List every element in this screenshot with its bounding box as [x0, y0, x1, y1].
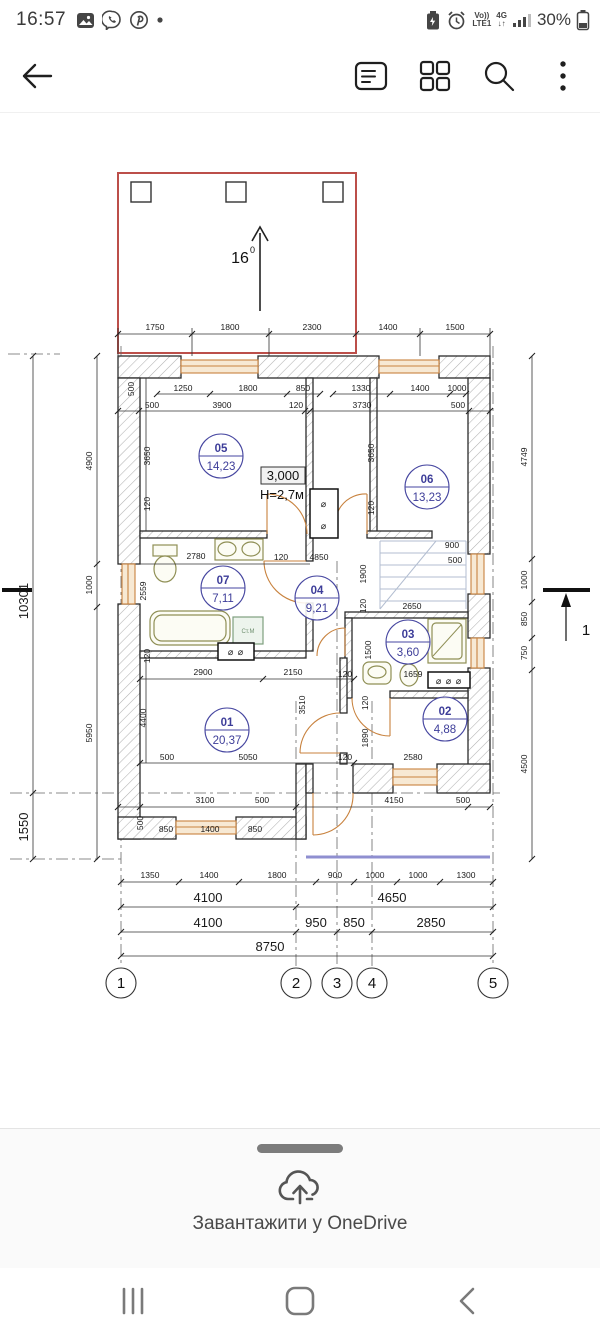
photo-viewer[interactable]: 16 0 — [0, 112, 600, 1129]
room-number: 03 — [402, 629, 415, 641]
back-button[interactable] — [18, 57, 56, 95]
dim: 1350 — [141, 870, 160, 880]
section-label: 1 — [582, 622, 590, 639]
navigation-bar — [0, 1268, 600, 1333]
search-button[interactable] — [480, 57, 518, 95]
dim: 1000 — [366, 870, 385, 880]
dim: 1000 — [448, 383, 467, 393]
axis-number: 2 — [292, 975, 300, 992]
dim: 1890 — [360, 728, 370, 747]
dim: 1500 — [363, 640, 373, 659]
dim: 500 — [126, 382, 136, 396]
alarm-icon — [446, 10, 467, 31]
dim: 4100 — [194, 915, 223, 930]
dim: 3650 — [142, 446, 152, 465]
dim: 500 — [160, 752, 174, 762]
viber-notification-icon — [102, 10, 122, 30]
entry-door — [313, 793, 353, 835]
axis-bubbles: 1 2 3 4 5 — [106, 968, 508, 998]
dim: 1400 — [200, 870, 219, 880]
dim: 1800 — [221, 322, 240, 332]
volte-indicator: Vo))LTE1 — [472, 12, 491, 28]
dim: 2150 — [284, 667, 303, 677]
room-number: 02 — [439, 706, 452, 718]
dim: 2650 — [403, 601, 422, 611]
toilet-tank — [153, 545, 177, 556]
room-number: 04 — [311, 585, 324, 597]
notification-icons — [76, 10, 164, 30]
dim: 1400 — [379, 322, 398, 332]
dim: 4900 — [84, 451, 94, 470]
search-icon — [483, 60, 515, 92]
door-room02 — [352, 698, 390, 736]
dim: 3730 — [353, 400, 372, 410]
onedrive-upload-label: Завантажити у OneDrive — [193, 1213, 408, 1235]
dim: 4100 — [194, 890, 223, 905]
dim: 3650 — [366, 443, 376, 462]
room-label-01: 0120,37 — [205, 708, 249, 752]
room-label-06: 0613,23 — [405, 465, 449, 509]
room-number: 06 — [421, 474, 434, 486]
dim: 120 — [338, 669, 352, 679]
dim: 1500 — [446, 322, 465, 332]
dim: 850 — [248, 824, 262, 834]
dim: 1659 — [404, 669, 423, 679]
dim: 4150 — [385, 795, 404, 805]
room-label-04: 049,21 — [295, 576, 339, 620]
vent-symbol: ⌀ — [321, 499, 327, 509]
dim: 5050 — [239, 752, 258, 762]
dim: 120 — [366, 501, 376, 515]
dim: 500 — [135, 816, 145, 830]
dim: 1400 — [411, 383, 430, 393]
dim: 3510 — [297, 695, 307, 714]
dim: 2850 — [417, 915, 446, 930]
vent-symbol: ⌀ ⌀ — [228, 647, 244, 657]
room-number: 01 — [221, 717, 234, 729]
room-label-05: 0514,23 — [199, 434, 243, 478]
dim: 3100 — [196, 795, 215, 805]
dim: 3900 — [213, 400, 232, 410]
dim: 4850 — [310, 552, 329, 562]
dim: 500 — [255, 795, 269, 805]
room-label-03: 033,60 — [386, 620, 430, 664]
room-area: 13,23 — [413, 492, 442, 504]
ceiling-height: Н=2,7м — [260, 487, 304, 502]
dim: 2580 — [404, 752, 423, 762]
dim: 2900 — [194, 667, 213, 677]
dim: 1300 — [457, 870, 476, 880]
dim: 1330 — [352, 383, 371, 393]
dim: 1000 — [409, 870, 428, 880]
overflow-menu-button[interactable] — [544, 57, 582, 95]
network-type-indicator: 4G↓↑ — [496, 12, 507, 28]
axis-number: 3 — [333, 975, 341, 992]
room-area: 20,37 — [213, 735, 242, 747]
more-notifications-dot-icon — [156, 16, 164, 24]
dim: 2780 — [187, 551, 206, 561]
dim: 120 — [360, 696, 370, 710]
axis-number: 1 — [117, 975, 125, 992]
dim: 4650 — [378, 890, 407, 905]
slope-arrow-icon — [252, 227, 268, 311]
dim: 120 — [274, 552, 288, 562]
dim: 850 — [519, 612, 529, 626]
dim: 950 — [305, 915, 327, 930]
level-value: 3,000 — [267, 468, 300, 483]
dim: 500 — [456, 795, 470, 805]
dim: 1800 — [268, 870, 287, 880]
dim: 850 — [296, 383, 310, 393]
vent-symbol: ⌀ — [321, 521, 327, 531]
slope-superscript: 0 — [250, 245, 255, 255]
dim: 120 — [142, 497, 152, 511]
recents-button[interactable] — [110, 1278, 156, 1324]
app-toolbar — [0, 40, 600, 112]
recents-icon — [120, 1287, 146, 1315]
room-area: 9,21 — [306, 603, 328, 615]
dim: 500 — [145, 400, 159, 410]
status-bar: 16:57 Vo))LTE1 4G↓↑ 30% — [0, 0, 600, 40]
toilet — [154, 556, 176, 582]
door-room03 — [317, 628, 345, 656]
room-label-02: 024,88 — [423, 697, 467, 741]
dim: 4400 — [138, 708, 148, 727]
dim: 900 — [445, 540, 459, 550]
dim: 8750 — [256, 939, 285, 954]
clock: 16:57 — [16, 9, 66, 31]
room-number: 05 — [215, 443, 228, 455]
dim: 120 — [289, 400, 303, 410]
slope-label: 16 — [231, 250, 249, 267]
battery-percent: 30% — [537, 10, 571, 30]
room-labels: 0120,37 024,88 033,60 049,21 0514,23 061… — [199, 434, 467, 752]
level-mark: 3,000 Н=2,7м — [260, 467, 305, 502]
stairs — [380, 541, 466, 609]
dim: 900 — [328, 870, 342, 880]
room-area: 7,11 — [212, 593, 234, 605]
dimension-labels-bottom: 1350 1400 1800 900 1000 1000 1300 4100 4… — [141, 870, 476, 954]
dim: 1000 — [519, 570, 529, 589]
signal-strength-icon — [512, 11, 532, 29]
three-dots-icon — [558, 59, 568, 93]
cloud-upload-icon — [274, 1167, 326, 1207]
sheet-drag-handle[interactable] — [257, 1144, 343, 1153]
column — [131, 182, 151, 202]
room-area: 14,23 — [207, 461, 236, 473]
back-arrow-icon — [20, 61, 54, 91]
dim: 10301 — [16, 583, 31, 619]
grid-icon — [419, 60, 451, 92]
room-label-07: 077,11 — [201, 566, 245, 610]
door-room06 — [335, 494, 367, 534]
dim: 4749 — [519, 447, 529, 466]
pinterest-notification-icon — [129, 10, 149, 30]
room-area: 3,60 — [397, 647, 419, 659]
dim: 1000 — [84, 575, 94, 594]
column — [323, 182, 343, 202]
dim: 1800 — [239, 383, 258, 393]
vent-symbol: ⌀ ⌀ ⌀ — [436, 676, 462, 686]
dim: 1750 — [146, 322, 165, 332]
onedrive-upload-button[interactable]: Завантажити у OneDrive — [0, 1167, 600, 1235]
dim: 750 — [519, 646, 529, 660]
battery-icon — [576, 9, 590, 31]
screen: 16:57 Vo))LTE1 4G↓↑ 30% — [0, 0, 600, 1333]
back-chevron-icon — [457, 1286, 477, 1316]
door-room01 — [300, 713, 340, 753]
axis-number: 4 — [368, 975, 376, 992]
system-icons: Vo))LTE1 4G↓↑ 30% — [425, 9, 590, 31]
dim: 850 — [343, 915, 365, 930]
dim: 120 — [142, 649, 152, 663]
grid-view-button[interactable] — [416, 57, 454, 95]
dim: 500 — [448, 555, 462, 565]
home-icon — [285, 1286, 315, 1316]
dim: 4500 — [519, 754, 529, 773]
home-button[interactable] — [277, 1278, 323, 1324]
back-nav-button[interactable] — [444, 1278, 490, 1324]
floor-plan-drawing: 16 0 — [0, 113, 600, 1129]
gallery-notification-icon — [76, 11, 95, 30]
dim: 120 — [338, 752, 352, 762]
dim: 120 — [358, 599, 368, 613]
dim: 1400 — [201, 824, 220, 834]
bottom-sheet: Завантажити у OneDrive — [0, 1128, 600, 1269]
dim: 2559 — [138, 581, 148, 600]
toolbar-actions — [352, 57, 582, 95]
dim: 5950 — [84, 723, 94, 742]
room-number: 07 — [217, 575, 230, 587]
dim: 2300 — [303, 322, 322, 332]
dim: 500 — [451, 400, 465, 410]
dim: 850 — [159, 824, 173, 834]
note-icon — [354, 60, 388, 92]
room-area: 4,88 — [434, 724, 456, 736]
dim: 1900 — [358, 564, 368, 583]
column — [226, 182, 246, 202]
washer-label: Ст.М — [241, 629, 254, 635]
battery-saver-icon — [425, 10, 441, 31]
dim: 1250 — [174, 383, 193, 393]
dim: 1550 — [16, 813, 31, 842]
details-button[interactable] — [352, 57, 390, 95]
axis-number: 5 — [489, 975, 497, 992]
